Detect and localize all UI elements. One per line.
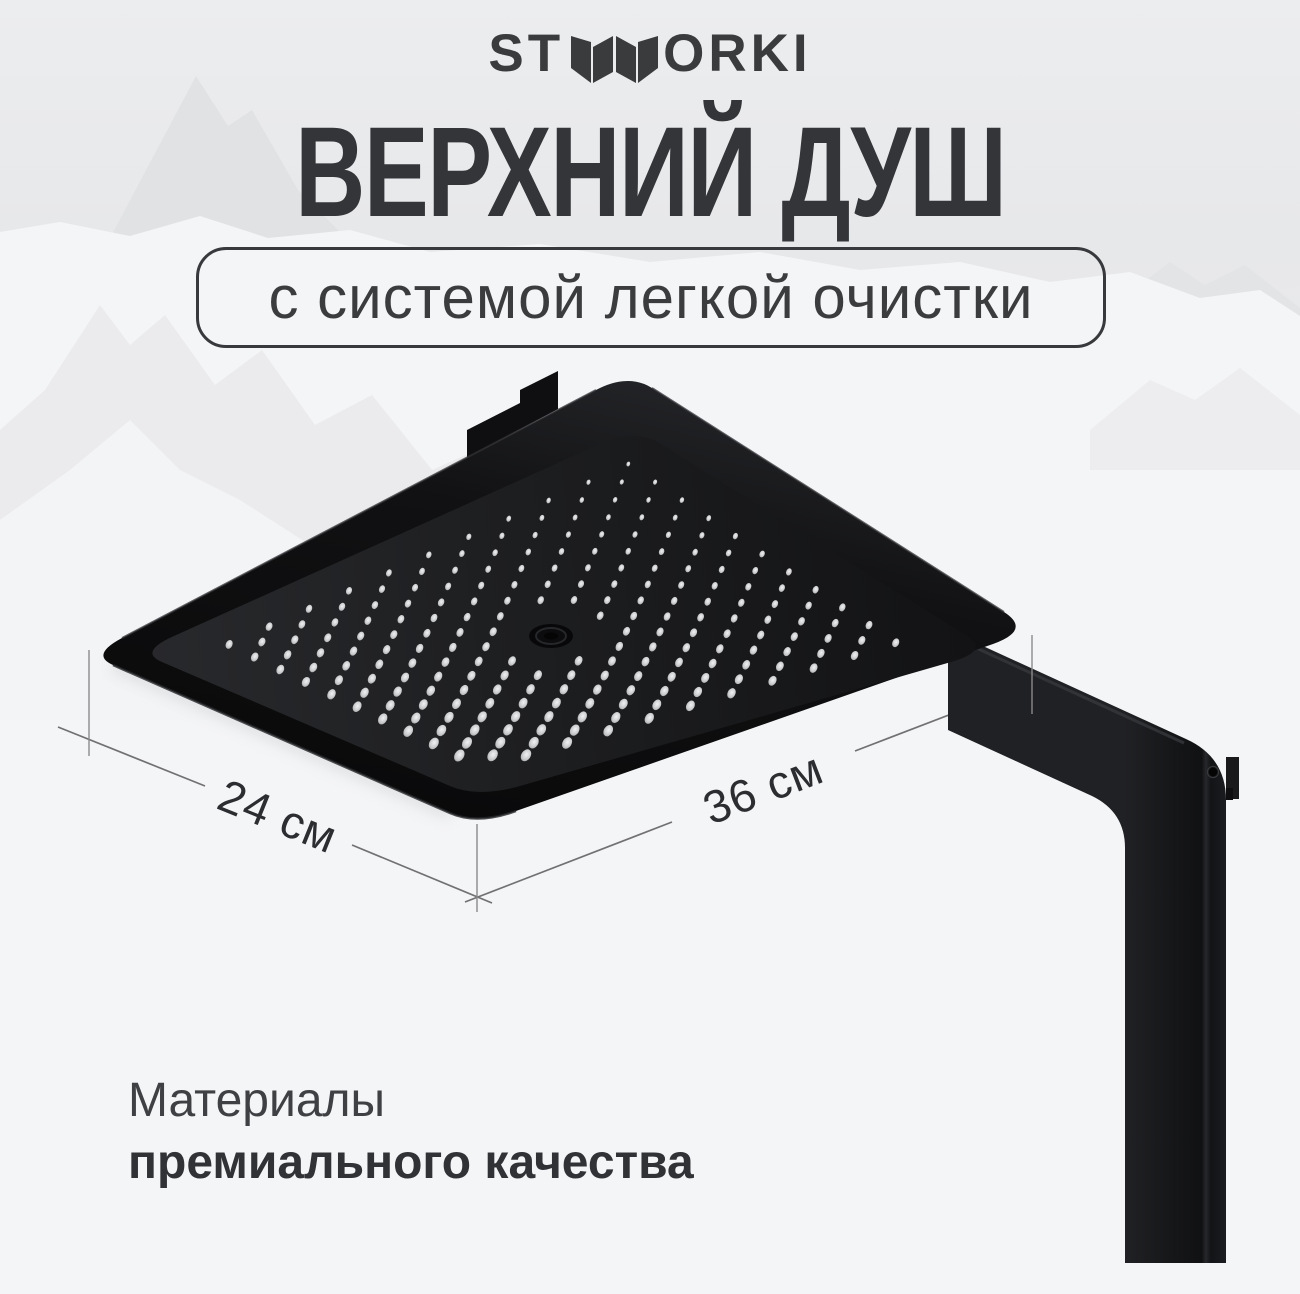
logo-w-monogram-icon bbox=[571, 34, 658, 84]
materials-note: Материалы премиального качества bbox=[128, 1070, 694, 1194]
logo-text-left: ST bbox=[488, 29, 564, 78]
center-cap bbox=[529, 624, 573, 648]
brand-logo: ST ORKI bbox=[0, 22, 1300, 78]
page-title: ВЕРХНИЙ ДУШ bbox=[0, 106, 1300, 239]
arm-screw-hole bbox=[1209, 768, 1217, 776]
materials-line-2: премиального качества bbox=[128, 1132, 694, 1194]
subtitle-badge: с системой легкой очистки bbox=[196, 247, 1106, 348]
materials-line-1: Материалы bbox=[128, 1070, 694, 1132]
product-card: ST ORKI ВЕРХНИЙ ДУШ с системой легкой оч… bbox=[0, 0, 1300, 1294]
subtitle-badge-label: с системой легкой очистки bbox=[269, 263, 1034, 332]
logo-text-right: ORKI bbox=[663, 29, 812, 78]
